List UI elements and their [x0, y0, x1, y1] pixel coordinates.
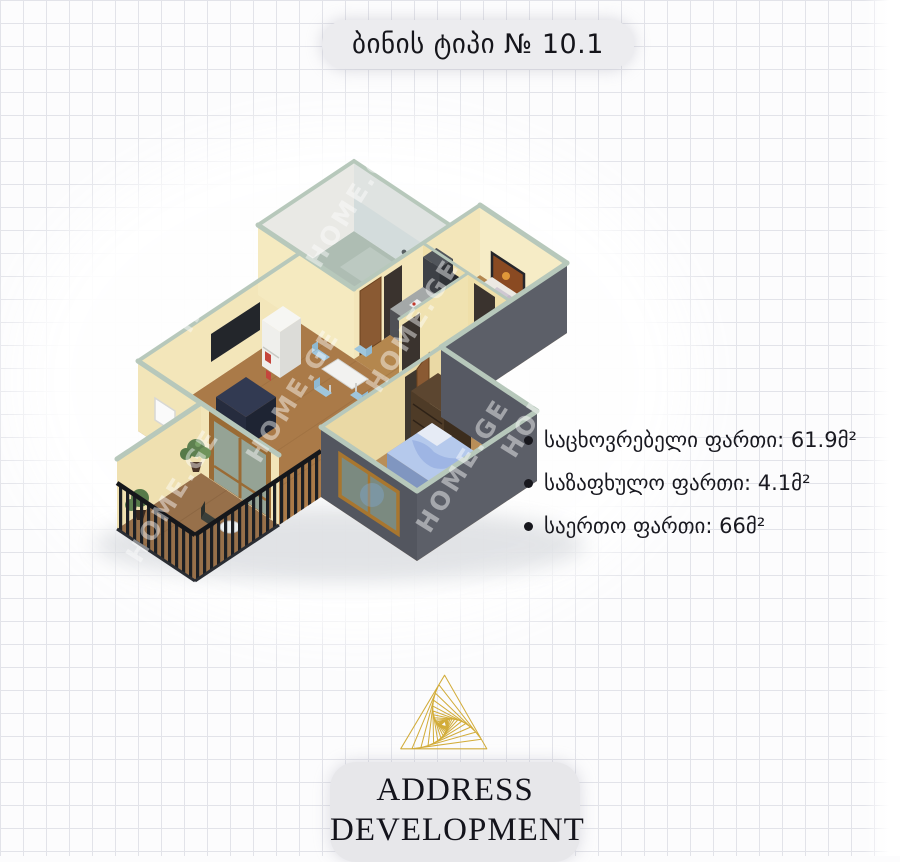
spec-total-area: საერთო ფართი: 66მ²: [524, 514, 857, 538]
bullet-dot-icon: [524, 479, 533, 488]
triangle-spiral-path: [401, 675, 487, 749]
spec-text: საზაფხულო ფართი: 4.1მ²: [544, 471, 811, 495]
spec-text: საერთო ფართი: 66მ²: [544, 514, 765, 538]
logo-line-2: DEVELOPMENT: [330, 810, 580, 850]
right-edge-fade: [864, 0, 900, 856]
entry-door: [360, 277, 381, 355]
bullet-dot-icon: [524, 436, 533, 445]
area-spec-list: საცხოვრებელი ფართი: 61.9მ² საზაფხულო ფარ…: [524, 428, 857, 538]
developer-logo: ADDRESS DEVELOPMENT: [330, 762, 580, 862]
spec-summer-area: საზაფხულო ფართი: 4.1მ²: [524, 471, 857, 495]
spec-living-area: საცხოვრებელი ფართი: 61.9მ²: [524, 428, 857, 452]
bullet-dot-icon: [524, 522, 533, 531]
spec-text: საცხოვრებელი ფართი: 61.9მ²: [544, 428, 857, 452]
logo-line-1: ADDRESS: [330, 770, 580, 810]
logo-triangle-icon: [396, 666, 490, 758]
page-title: ბინის ტიპი № 10.1: [352, 29, 604, 60]
page-title-pill: ბინის ტიპი № 10.1: [322, 20, 634, 69]
